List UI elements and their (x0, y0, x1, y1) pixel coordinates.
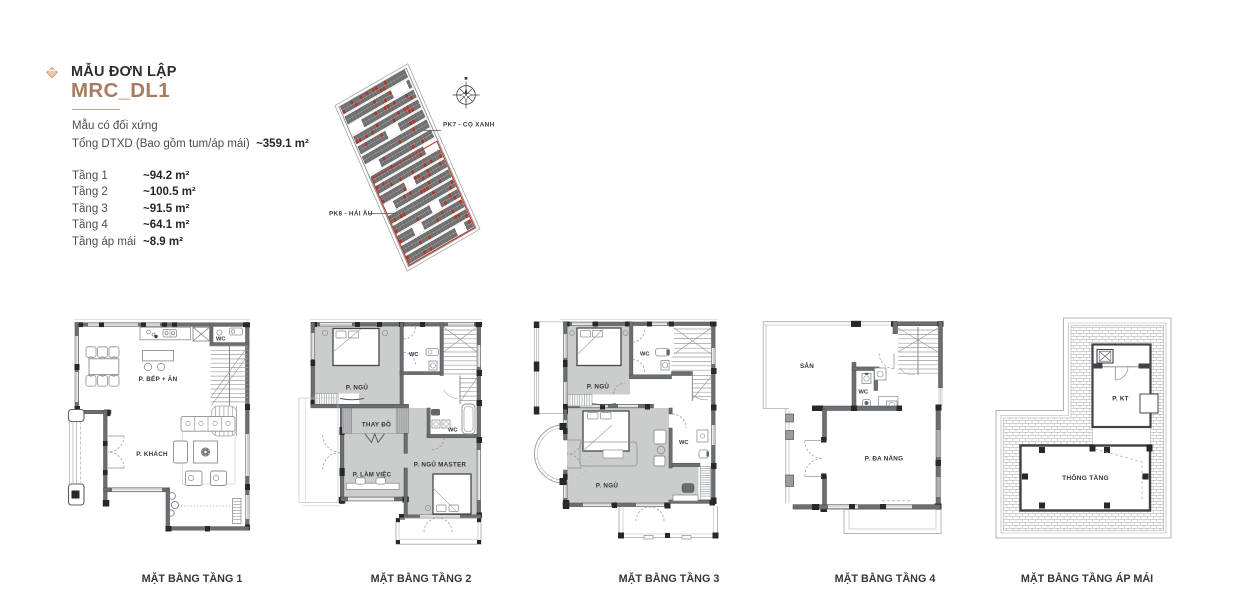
svg-text:PK7 - CỌ XANH: PK7 - CỌ XANH (443, 121, 495, 128)
svg-text:P. ĐA NĂNG: P. ĐA NĂNG (865, 454, 904, 463)
svg-text:P. NGỦ: P. NGỦ (596, 481, 619, 490)
svg-text:WC: WC (216, 337, 225, 343)
svg-text:WC: WC (640, 352, 649, 358)
svg-text:P. NGỦ MASTER: P. NGỦ MASTER (414, 459, 467, 468)
svg-text:P. NGỦ: P. NGỦ (346, 383, 369, 392)
svg-text:PK8 - HẢI ÂU: PK8 - HẢI ÂU (329, 209, 373, 218)
svg-text:P. KT: P. KT (1112, 396, 1129, 403)
svg-text:P. BẾP + ĂN: P. BẾP + ĂN (139, 373, 178, 383)
svg-text:P. KHÁCH: P. KHÁCH (136, 449, 168, 458)
svg-text:SÂN: SÂN (800, 361, 814, 370)
svg-text:WC: WC (859, 390, 868, 396)
svg-text:WC: WC (679, 440, 688, 446)
svg-text:P. NGỦ: P. NGỦ (587, 381, 610, 390)
svg-text:WC: WC (409, 352, 418, 358)
